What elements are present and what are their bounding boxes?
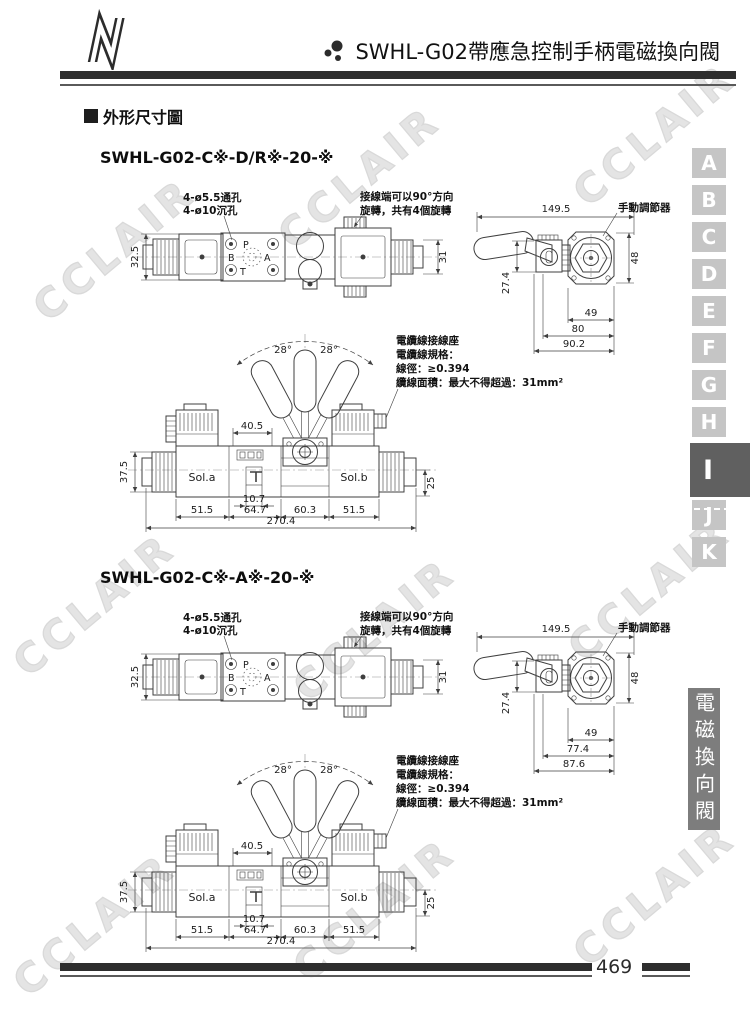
valve-assembly-front: Sol.a Sol.b — [142, 446, 416, 497]
dim-row-1: 51.5 — [191, 505, 213, 516]
side-tab-g: G — [692, 370, 726, 400]
hole-note-line2: 4-ø10沉孔 — [183, 624, 238, 637]
dim-top-left: 32.5 — [130, 246, 141, 268]
sol-a-label: Sol.a — [188, 891, 215, 904]
side-tab-c: C — [692, 222, 726, 252]
dim-body-height: 48 — [630, 672, 641, 685]
dim-plate-width: 40.5 — [241, 421, 263, 432]
dim-total-width: 270.4 — [267, 936, 296, 947]
footer-rule-thin-left — [60, 975, 592, 977]
port-b-label: B — [228, 673, 235, 684]
right-terminal-box — [332, 824, 386, 866]
center-section — [285, 653, 335, 710]
dim-t-slot: 10.7 — [243, 494, 265, 505]
cable-note-line3: 線徑：≥0.394 — [396, 782, 470, 795]
adjuster-label: 手動調節器 — [618, 201, 671, 214]
dim-t-slot: 10.7 — [243, 914, 265, 925]
right-terminal-box — [332, 404, 386, 446]
angle-right-label: 28° — [320, 765, 338, 776]
footer-rule-thick-left — [60, 963, 592, 971]
adjuster-body — [568, 232, 615, 284]
top-view: P B A T — [130, 610, 453, 717]
port-a-label: A — [264, 673, 271, 684]
side-tab-e: E — [692, 296, 726, 326]
dim-row-2: 64.7 — [244, 925, 266, 936]
dim-row-4: 51.5 — [343, 505, 365, 516]
catalog-page: CCLAIR CCLAIR CCLAIR CCLAIR CCLAIR CCLAI… — [0, 0, 750, 1018]
angle-left-label: 28° — [274, 765, 292, 776]
side-tab-h: H — [692, 407, 726, 437]
port-p-label: P — [243, 240, 249, 251]
page-header: SWHL-G02帶應急控制手柄電磁換向閥 — [324, 36, 720, 66]
section-heading-marker — [84, 109, 98, 123]
cable-note-line2: 電纜線規格： — [396, 348, 459, 361]
dim-bottom-2: 80 — [572, 324, 585, 335]
dim-total-width: 270.4 — [267, 516, 296, 527]
page-break-dash — [684, 508, 730, 510]
front-view: 28° 28° — [119, 754, 563, 952]
dim-row-4: 51.5 — [343, 925, 365, 936]
hole-note-line1: 4-ø5.5通孔 — [183, 191, 242, 204]
model-label: SWHL-G02-C※-A※-20-※ — [100, 568, 314, 587]
port-t-label: T — [239, 267, 246, 278]
dim-bottom-3: 87.6 — [563, 759, 585, 770]
port-p-label: P — [243, 660, 249, 671]
rotate-note-line1: 接線端可以90°方向 — [360, 610, 453, 623]
dim-front-right: 25 — [426, 477, 437, 490]
dim-front-left: 37.5 — [119, 461, 130, 483]
rotate-note-line2: 旋轉，共有4個旋轉 — [359, 624, 452, 637]
front-view: 28° 28° — [119, 334, 563, 532]
lever-pivot-mount — [283, 438, 327, 466]
page-number: 469 — [596, 956, 632, 978]
footer-rule-thin-right — [642, 975, 690, 977]
left-terminal-box — [166, 404, 218, 446]
dim-row-3: 60.3 — [294, 505, 316, 516]
cable-connector-stub — [374, 414, 386, 428]
sol-a-label: Sol.a — [188, 471, 215, 484]
side-tab-j: J — [692, 500, 726, 530]
header-dots-icon — [324, 38, 346, 64]
center-section — [285, 233, 335, 290]
section-heading: 外形尺寸圖 — [84, 104, 183, 128]
dim-bottom-1: 49 — [585, 308, 598, 319]
side-tab-a: A — [692, 148, 726, 178]
lever-pivot-mount — [283, 858, 327, 886]
side-tab-f: F — [692, 333, 726, 363]
dim-row-2: 64.7 — [244, 505, 266, 516]
rotate-note-line2: 旋轉，共有4個旋轉 — [359, 204, 452, 217]
drawing-section-2: SWHL-G02-C※-A※-20-※ — [100, 568, 671, 952]
dim-plate-width: 40.5 — [241, 841, 263, 852]
handle-arm — [525, 238, 552, 262]
port-t-label: T — [239, 687, 246, 698]
hole-note-line1: 4-ø5.5通孔 — [183, 611, 242, 624]
side-view: 149.5 — [472, 201, 671, 355]
side-tab-k: K — [692, 537, 726, 567]
header-rule-thin — [60, 84, 736, 86]
angle-left-label: 28° — [274, 345, 292, 356]
cable-note-line1: 電纜線接線座 — [396, 334, 459, 347]
dimension-drawings: SWHL-G02-C※-D/R※-20-※ — [0, 0, 750, 1018]
dim-bottom-2: 77.4 — [567, 744, 589, 755]
dim-front-right: 25 — [426, 897, 437, 910]
dim-bottom-1: 49 — [585, 728, 598, 739]
left-terminal-box — [166, 824, 218, 866]
sol-b-label: Sol.b — [340, 891, 367, 904]
dim-bottom-3: 90.2 — [563, 339, 585, 350]
side-tab-i-active: I — [690, 443, 750, 497]
section-heading-label: 外形尺寸圖 — [103, 104, 183, 128]
footer-rule-thick-right — [642, 963, 690, 971]
cable-note-line4: 纜線面積：最大不得超過：31mm² — [396, 376, 563, 389]
handle-arm — [525, 658, 552, 682]
brand-logo — [74, 8, 136, 70]
dim-pivot-offset: 27.4 — [501, 272, 512, 294]
dim-pivot-offset: 27.4 — [501, 692, 512, 714]
adjuster-label: 手動調節器 — [618, 621, 671, 634]
page-title: SWHL-G02帶應急控制手柄電磁換向閥 — [355, 36, 720, 66]
cable-note-line4: 纜線面積：最大不得超過：31mm² — [396, 796, 563, 809]
side-tab-d: D — [692, 259, 726, 289]
dim-handle-width: 149.5 — [542, 624, 571, 635]
dim-row-3: 60.3 — [294, 925, 316, 936]
top-view: P B A T — [130, 190, 453, 297]
angle-right-label: 28° — [320, 345, 338, 356]
dim-handle-width: 149.5 — [542, 204, 571, 215]
dim-front-left: 37.5 — [119, 881, 130, 903]
port-b-label: B — [228, 253, 235, 264]
cable-note-line3: 線徑：≥0.394 — [396, 362, 470, 375]
adjuster-body — [568, 652, 615, 704]
cable-connector-stub — [374, 834, 386, 848]
dim-top-left: 32.5 — [130, 666, 141, 688]
model-label: SWHL-G02-C※-D/R※-20-※ — [100, 148, 333, 167]
side-category-label: 電磁換向閥 — [688, 688, 720, 830]
valve-assembly-front: Sol.a Sol.b — [142, 866, 416, 917]
dim-top-right: 31 — [438, 251, 449, 264]
dim-top-right: 31 — [438, 671, 449, 684]
hole-note-line2: 4-ø10沉孔 — [183, 204, 238, 217]
cable-note-line2: 電纜線規格： — [396, 768, 459, 781]
side-tab-b: B — [692, 185, 726, 215]
header-rule-thick — [60, 71, 736, 79]
port-a-label: A — [264, 253, 271, 264]
rotate-note-line1: 接線端可以90°方向 — [360, 190, 453, 203]
sol-b-label: Sol.b — [340, 471, 367, 484]
side-view: 149.5 — [472, 621, 671, 775]
cable-note-line1: 電纜線接線座 — [396, 754, 459, 767]
dim-body-height: 48 — [630, 252, 641, 265]
dim-row-1: 51.5 — [191, 925, 213, 936]
drawing-section-1: SWHL-G02-C※-D/R※-20-※ — [100, 148, 671, 532]
